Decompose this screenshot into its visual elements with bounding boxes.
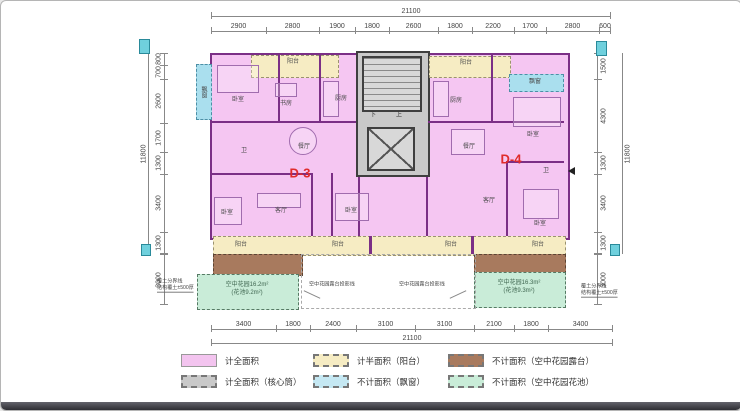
- dim-seg: 2400: [310, 318, 356, 329]
- dim-right-total: 11800: [622, 53, 632, 254]
- dim-seg: 2100: [474, 318, 514, 329]
- sofa: [257, 193, 301, 208]
- room-label: 餐厅: [463, 144, 475, 150]
- dim-seg: 2200: [472, 20, 514, 31]
- terrace-left: [213, 254, 303, 276]
- dim-top-chain: 2900 2800 1900 1800 2600 1800 2200 1700 …: [211, 20, 611, 32]
- dim-seg: 3400: [548, 318, 613, 329]
- section-marker: [596, 41, 607, 56]
- dim-seg: 800: [153, 53, 164, 65]
- level-marker-icon: [568, 167, 575, 175]
- dim-top-total: 21100: [211, 5, 611, 17]
- dim-bottom-total-label: 21100: [403, 335, 422, 342]
- dim-seg: 1300: [153, 152, 164, 174]
- terrace-right: [474, 254, 566, 274]
- room-label: 厨房: [335, 96, 347, 102]
- garden-right-note: 空中花园16.3m² (花池9.3m²): [498, 280, 541, 296]
- legend-item-baywindow: 不计面积（飘窗）: [313, 375, 425, 388]
- legend-swatch: [313, 354, 349, 367]
- dim-top-total-label: 21100: [402, 8, 421, 15]
- room-label: 客厅: [275, 208, 287, 214]
- dim-right-chain: 1500 4300 1300 3400 1300: [597, 53, 609, 254]
- legend-item-half-balcony: 计半面积（阳台）: [313, 354, 425, 367]
- dim-seg: 1300: [598, 232, 609, 254]
- dim-left-chain: 800 700 2600 1700 1300 3400 1300: [153, 53, 165, 254]
- garden-left-note: 空中花园16.2m² (花池9.2m²): [226, 282, 269, 298]
- interior-wall: [212, 121, 356, 123]
- section-marker: [141, 244, 151, 256]
- room-label: 卧室: [221, 210, 233, 216]
- legend-swatch: [181, 375, 217, 388]
- room-label: 厨房: [450, 98, 462, 104]
- dining-table: [289, 127, 317, 155]
- room-label: 阳台: [332, 242, 344, 248]
- room-label: 卫: [543, 168, 549, 174]
- dim-left-total: 11800: [139, 53, 149, 254]
- dim-seg: 2800: [266, 20, 319, 31]
- projection-note-left: 空中花园露台投影线: [309, 282, 355, 288]
- room-label: 卧室: [534, 221, 546, 227]
- projection-note-right: 空中花园露台投影线: [399, 282, 445, 288]
- dim-seg: 2600: [153, 79, 164, 123]
- stair-down-label: 下: [370, 110, 376, 119]
- bed: [217, 65, 259, 93]
- section-marker: [610, 244, 620, 256]
- dim-seg: 700: [153, 65, 164, 79]
- dim-seg: 3100: [356, 318, 415, 329]
- unit-label-d3: D-3: [290, 166, 311, 181]
- legend-swatch: [448, 354, 484, 367]
- balcony-divider-wall: [471, 236, 474, 254]
- dim-bottom-total: 21100: [211, 332, 613, 344]
- dim-seg: 3400: [153, 174, 164, 232]
- room-label: 卫: [241, 148, 247, 154]
- dim-seg: 1500: [598, 53, 609, 79]
- room-label: 阳台: [287, 59, 299, 65]
- dim-seg: 600: [599, 20, 611, 31]
- kitchen-counter: [433, 81, 449, 117]
- bed: [523, 189, 559, 219]
- interior-wall: [331, 173, 333, 236]
- legend-item-terrace: 不计面积（空中花园露台）: [448, 354, 594, 367]
- dim-bottom-chain: 3400 1800 2400 3100 3100 2100 1800 3400: [211, 318, 613, 330]
- stair-up-label: 上: [396, 110, 402, 119]
- soil-note-right: 覆土分界线 结构覆土±500厚: [581, 284, 618, 298]
- dim-seg: 1800: [514, 318, 548, 329]
- balcony-band-bottom: [213, 236, 566, 256]
- bed: [335, 193, 369, 221]
- room-label: 阳台: [445, 242, 457, 248]
- legend-swatch: [313, 375, 349, 388]
- room-label: 卧室: [345, 208, 357, 214]
- dim-seg: 1700: [153, 123, 164, 152]
- dim-seg: 2900: [211, 20, 266, 31]
- legend-item-full-area: 计全面积: [181, 354, 259, 367]
- interior-wall: [491, 53, 493, 121]
- dim-seg: 2800: [546, 20, 599, 31]
- unit-label-d4: D-4: [501, 152, 522, 167]
- dim-seg: 1300: [598, 152, 609, 174]
- balcony-divider-wall: [369, 236, 372, 254]
- soil-note-left: 覆土分界线 结构覆土±500厚: [157, 279, 194, 293]
- dim-seg: 1800: [355, 20, 389, 31]
- elevator-shaft: [367, 127, 415, 171]
- dim-seg: 1800: [438, 20, 472, 31]
- room-label: 书房: [280, 101, 292, 107]
- dim-seg: 3100: [415, 318, 474, 329]
- section-marker: [139, 39, 150, 54]
- room-label: 阳台: [460, 60, 472, 66]
- room-label: 卧室: [232, 97, 244, 103]
- dim-seg: 4300: [598, 79, 609, 152]
- legend-swatch: [448, 375, 484, 388]
- floorplan-sheet: 21100 2900 2800 1900 1800 2600 1800 2200…: [0, 0, 740, 411]
- dim-seg: 1800: [276, 318, 310, 329]
- dining-table: [451, 129, 485, 155]
- dim-seg: 1700: [514, 20, 546, 31]
- room-label: 餐厅: [298, 144, 310, 150]
- dim-seg: 1300: [153, 232, 164, 254]
- dim-seg: 1900: [319, 20, 355, 31]
- desk: [275, 83, 297, 97]
- room-label: 飘窗: [200, 86, 206, 98]
- stair-block: [362, 56, 422, 112]
- legend-item-core: 计全面积（核心筒）: [181, 375, 302, 388]
- room-label: 阳台: [532, 242, 544, 248]
- legend-swatch: [181, 354, 217, 367]
- legend-item-planter: 不计面积（空中花园花池）: [448, 375, 594, 388]
- interior-wall: [311, 173, 313, 236]
- interior-wall: [506, 161, 508, 236]
- interior-wall: [319, 53, 321, 121]
- dim-seg: 2600: [389, 20, 438, 31]
- dim-seg: 3400: [598, 174, 609, 232]
- room-label: 飘窗: [529, 79, 541, 85]
- dim-seg: 3400: [211, 318, 276, 329]
- bed: [513, 97, 561, 127]
- room-label: 阳台: [235, 242, 247, 248]
- room-label: 卧室: [527, 132, 539, 138]
- room-label: 客厅: [483, 198, 495, 204]
